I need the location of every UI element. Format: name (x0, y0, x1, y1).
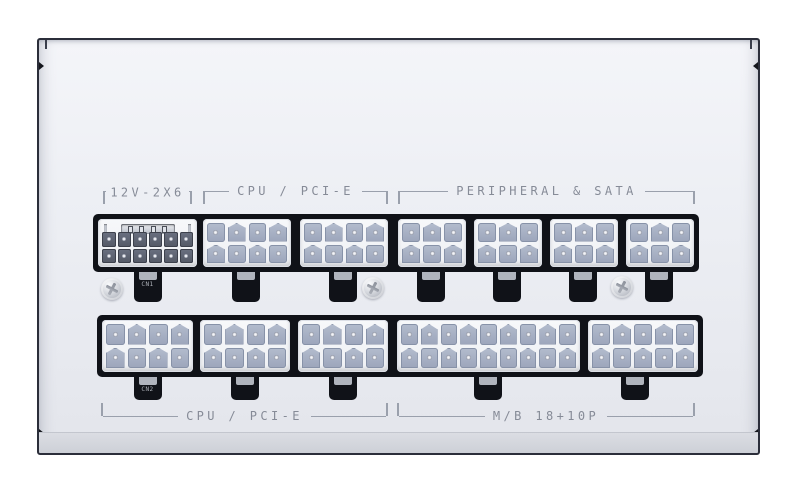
clip-latch (650, 272, 668, 280)
pin-socket (499, 223, 517, 242)
pin-socket (149, 348, 168, 369)
pin-socket (421, 324, 438, 345)
pin-socket (164, 249, 178, 264)
phillips-screw (611, 276, 633, 298)
section-label-peripheral-sata: PERIPHERAL & SATA (448, 184, 645, 198)
pin-socket (207, 223, 225, 242)
cable-clip-slot: CN2 (134, 377, 162, 400)
pin-grid (402, 223, 462, 263)
pin-socket (613, 324, 631, 345)
bracket-tick (203, 191, 205, 204)
cable-clip-slot (493, 272, 521, 302)
pin-socket (441, 324, 458, 345)
pin-socket (423, 245, 441, 264)
bracket-tick (693, 191, 695, 204)
pin-socket (228, 245, 246, 264)
pin-socket (401, 348, 418, 369)
pin-socket (500, 324, 517, 345)
pin-socket (520, 348, 537, 369)
bracket-line (362, 191, 386, 192)
connector-strip-top (93, 214, 699, 272)
pin-socket (539, 348, 556, 369)
callout-peripheral-sata: PERIPHERAL & SATA (398, 178, 695, 204)
clip-latch (139, 272, 157, 280)
bracket-tick (397, 403, 399, 416)
pin-socket (592, 324, 610, 345)
corner-wedge-top-right (753, 62, 758, 70)
pin-socket (423, 223, 441, 242)
pin-socket (149, 232, 163, 247)
corner-step-top-right (750, 40, 752, 49)
pin-socket (164, 232, 178, 247)
pin-socket (480, 324, 497, 345)
pin-socket (592, 348, 610, 369)
pin-socket (441, 348, 458, 369)
pin-socket (225, 324, 243, 345)
pin-grid (478, 223, 538, 263)
sense-pin (152, 227, 155, 232)
pin-socket (554, 245, 572, 264)
clip-latch (139, 377, 157, 385)
pin-socket (180, 232, 194, 247)
connector-peripheral-6pin-4 (626, 219, 694, 267)
pin-socket (302, 324, 320, 345)
product-photo: 12V-2X6 CPU / PCI-E PERIPHERAL & SATA CP… (0, 0, 800, 493)
bracket-line (311, 416, 386, 417)
pin-socket (676, 324, 694, 345)
bracket-line (400, 191, 448, 192)
pin-socket (171, 324, 190, 345)
bracket-tick (101, 403, 103, 416)
pin-socket (676, 348, 694, 369)
pin-socket (180, 249, 194, 264)
pin-socket (128, 348, 147, 369)
pin-socket (118, 249, 132, 264)
pin-socket (499, 245, 517, 264)
callout-cpu-pcie-top: CPU / PCI-E (203, 178, 388, 204)
pin-socket (575, 245, 593, 264)
pin-socket (228, 223, 246, 242)
pin-grid (102, 232, 193, 263)
pin-socket (630, 245, 648, 264)
sense-pin (140, 227, 143, 232)
pin-socket (402, 223, 420, 242)
pin-grid (554, 223, 614, 263)
connector-peripheral-6pin-2 (474, 219, 542, 267)
bracket-line (103, 416, 178, 417)
section-label-cpu-pcie-top: CPU / PCI-E (229, 184, 362, 198)
pin-socket (133, 249, 147, 264)
pin-socket (460, 324, 477, 345)
bracket-line (205, 191, 229, 192)
connector-cpu-pcie-8pin-3 (102, 320, 193, 372)
bracket-tick (386, 191, 388, 204)
cable-clip-slot (329, 377, 357, 400)
clip-latch (334, 272, 352, 280)
clip-latch (479, 377, 497, 385)
pin-socket (304, 245, 322, 264)
pin-socket (149, 324, 168, 345)
pin-socket (269, 223, 287, 242)
pin-socket (128, 324, 147, 345)
cable-clip-slot (232, 272, 260, 302)
clip-latch (334, 377, 352, 385)
pin-socket (323, 324, 341, 345)
pin-socket (102, 249, 116, 264)
panel-bottom-edge (39, 432, 758, 453)
pin-grid (207, 223, 287, 263)
pin-socket (171, 348, 190, 369)
pin-socket (302, 348, 320, 369)
sense-pin (163, 227, 166, 232)
pin-socket (323, 348, 341, 369)
psu-panel: 12V-2X6 CPU / PCI-E PERIPHERAL & SATA CP… (37, 38, 760, 455)
pin-socket (325, 245, 343, 264)
connector-strip-bottom (97, 315, 703, 377)
connector-mb-18pin (397, 320, 580, 372)
pin-socket (520, 223, 538, 242)
callout-12v-2x6: 12V-2X6 (103, 178, 192, 204)
pin-grid (401, 324, 576, 368)
pin-socket (249, 245, 267, 264)
pin-socket (102, 232, 116, 247)
bracket-line (607, 416, 693, 417)
pin-socket (249, 223, 267, 242)
pin-socket (204, 324, 222, 345)
pin-socket (630, 223, 648, 242)
bracket-tick (386, 403, 388, 416)
corner-step-top-left (45, 40, 47, 49)
pin-socket (304, 223, 322, 242)
cable-clip-slot (417, 272, 445, 302)
connector-mb-10pin (588, 320, 698, 372)
pin-socket (520, 245, 538, 264)
clip-latch (237, 272, 255, 280)
pin-grid (106, 324, 189, 368)
pin-socket (672, 223, 690, 242)
pin-socket (118, 232, 132, 247)
sense-pin (129, 227, 132, 232)
bracket-tick (398, 191, 400, 204)
pin-grid (204, 324, 286, 368)
callout-cpu-pcie-bottom: CPU / PCI-E (101, 403, 388, 429)
pin-socket (106, 348, 125, 369)
cable-clip-slot (231, 377, 259, 400)
pin-socket (346, 245, 364, 264)
pin-socket (655, 324, 673, 345)
phillips-screw (101, 278, 123, 300)
pin-socket (268, 324, 286, 345)
pin-socket (133, 232, 147, 247)
connector-peripheral-6pin-3 (550, 219, 618, 267)
clip-latch (626, 377, 644, 385)
pin-socket (401, 324, 418, 345)
pin-socket (460, 348, 477, 369)
pin-socket (149, 249, 163, 264)
pin-socket (204, 348, 222, 369)
pin-socket (575, 223, 593, 242)
section-label-12v-2x6: 12V-2X6 (106, 186, 188, 200)
pin-grid (302, 324, 384, 368)
pin-socket (480, 348, 497, 369)
pin-socket (225, 348, 243, 369)
pin-socket (672, 245, 690, 264)
connector-cpu-pcie-8pin-4 (200, 320, 290, 372)
callout-mb-18-10p: M/B 18+10P (397, 403, 695, 429)
pin-socket (520, 324, 537, 345)
pin-socket (268, 348, 286, 369)
clip-latch (574, 272, 592, 280)
pin-socket (478, 223, 496, 242)
pin-socket (346, 223, 364, 242)
connector-cpu-pcie-8pin-5 (298, 320, 388, 372)
pin-socket (366, 223, 384, 242)
bracket-line (645, 191, 693, 192)
connector-cpu-pcie-8pin-1 (203, 219, 291, 267)
section-label-cpu-pcie-bottom: CPU / PCI-E (178, 409, 311, 423)
corner-wedge-top-left (39, 62, 44, 70)
pin-socket (444, 245, 462, 264)
pin-socket (402, 245, 420, 264)
cable-clip-slot (569, 272, 597, 302)
pin-socket (366, 324, 384, 345)
pin-socket (634, 348, 652, 369)
pin-socket (559, 324, 576, 345)
pin-socket (500, 348, 517, 369)
pin-socket (247, 324, 265, 345)
clip-latch (422, 272, 440, 280)
bracket-tick (190, 191, 192, 204)
phillips-screw (362, 277, 384, 299)
connector-number-label: CN2 (134, 386, 162, 393)
bracket-tick (103, 191, 105, 204)
bracket-tick (693, 403, 695, 416)
pin-socket (554, 223, 572, 242)
pin-grid (592, 324, 694, 368)
pin-socket (421, 348, 438, 369)
pin-socket (366, 245, 384, 264)
pin-grid (630, 223, 690, 263)
clip-latch (498, 272, 516, 280)
pin-socket (651, 223, 669, 242)
cable-clip-slot: CN1 (134, 272, 162, 302)
pin-socket (269, 245, 287, 264)
pin-socket (325, 223, 343, 242)
bracket-line (399, 416, 485, 417)
pin-socket (444, 223, 462, 242)
cable-clip-slot (621, 377, 649, 400)
pin-socket (596, 245, 614, 264)
pin-socket (559, 348, 576, 369)
connector-peripheral-6pin-1 (398, 219, 466, 267)
pin-socket (345, 324, 363, 345)
pin-socket (655, 348, 673, 369)
pin-socket (539, 324, 556, 345)
pin-grid (304, 223, 384, 263)
pin-socket (478, 245, 496, 264)
connector-cpu-pcie-8pin-2 (300, 219, 388, 267)
pin-socket (596, 223, 614, 242)
connector-number-label: CN1 (134, 281, 162, 288)
pin-socket (106, 324, 125, 345)
cable-clip-slot (474, 377, 502, 400)
pin-socket (613, 348, 631, 369)
clip-latch (236, 377, 254, 385)
pin-socket (247, 348, 265, 369)
pin-socket (634, 324, 652, 345)
pin-socket (345, 348, 363, 369)
pin-socket (366, 348, 384, 369)
cable-clip-slot (329, 272, 357, 302)
pin-socket (207, 245, 225, 264)
pin-socket (651, 245, 669, 264)
connector-12v-2x6 (98, 219, 197, 267)
cable-clip-slot (645, 272, 673, 302)
section-label-mb-18-10p: M/B 18+10P (485, 409, 607, 423)
